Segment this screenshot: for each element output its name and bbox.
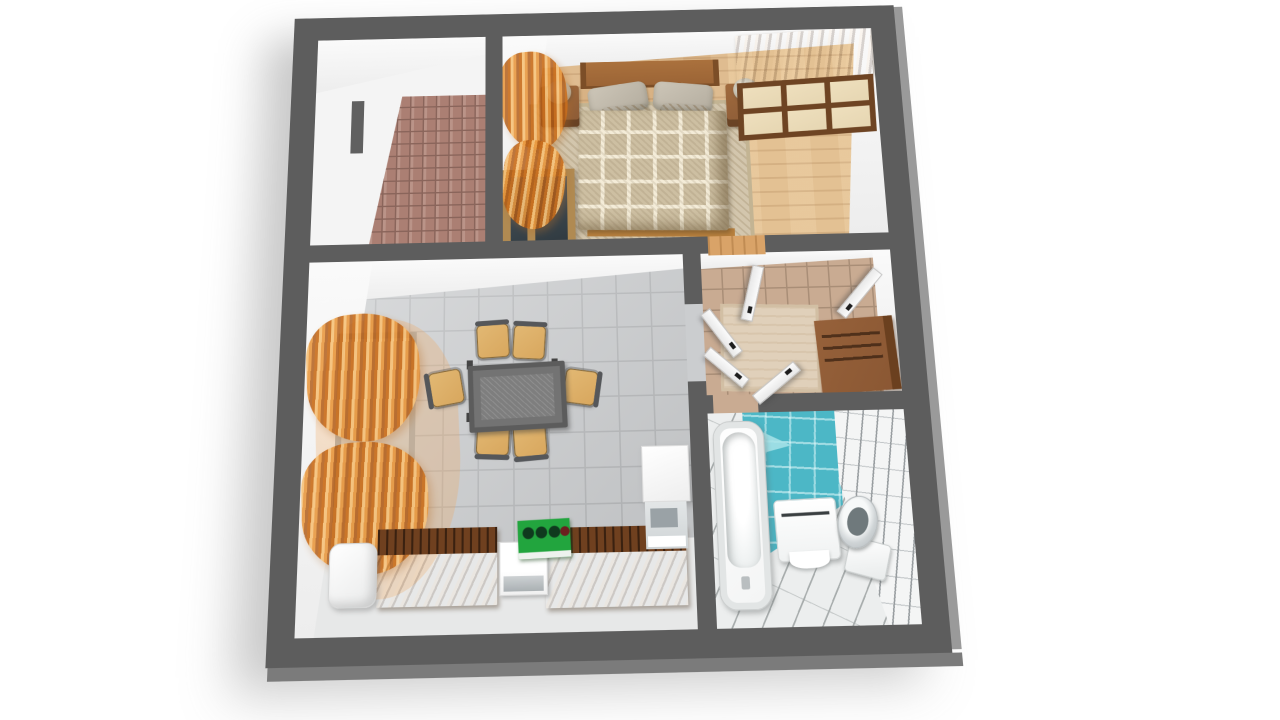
wardrobe-door-panel bbox=[786, 83, 825, 106]
wardrobe-glass-doors bbox=[737, 74, 877, 141]
bathroom-doorway-floor bbox=[713, 394, 759, 413]
dining-chair bbox=[562, 368, 599, 406]
balcony-tile-floor bbox=[369, 95, 485, 244]
wardrobe bbox=[735, 28, 877, 141]
dining-chair bbox=[428, 368, 466, 408]
balcony-wall-face bbox=[316, 37, 485, 93]
fridge bbox=[327, 542, 377, 608]
room-bathroom bbox=[707, 409, 921, 629]
room-living-kitchen bbox=[294, 254, 697, 638]
room-bedroom bbox=[503, 28, 889, 241]
wardrobe-door-panel bbox=[744, 112, 783, 136]
dining-chair bbox=[512, 325, 546, 360]
wardrobe-door-panel bbox=[788, 108, 827, 132]
balcony-wall-seam bbox=[350, 101, 364, 154]
washbasin bbox=[773, 497, 842, 563]
screenshot-canvas bbox=[0, 0, 1280, 720]
bedroom-doorway-floor bbox=[708, 235, 766, 255]
kitchen-counter-left bbox=[376, 527, 497, 608]
dining-table-top bbox=[480, 373, 555, 420]
hallway-cabinet bbox=[814, 315, 902, 394]
bed-blanket bbox=[578, 110, 729, 230]
room-balcony bbox=[310, 37, 486, 246]
bathtub-basin bbox=[722, 432, 762, 568]
dining-chair bbox=[476, 323, 510, 359]
wardrobe-door-panel bbox=[830, 79, 869, 102]
wardrobe-door-panel bbox=[743, 86, 782, 109]
kitchen-vanity-sink bbox=[645, 501, 688, 549]
wardrobe-door-panel bbox=[831, 105, 870, 128]
stove bbox=[517, 518, 571, 560]
bathtub bbox=[712, 420, 774, 611]
floor-plan-3d bbox=[265, 5, 952, 668]
bathtub-tap bbox=[741, 576, 750, 589]
kitchen-wall-cabinet bbox=[641, 445, 691, 503]
dining-table bbox=[468, 361, 568, 433]
